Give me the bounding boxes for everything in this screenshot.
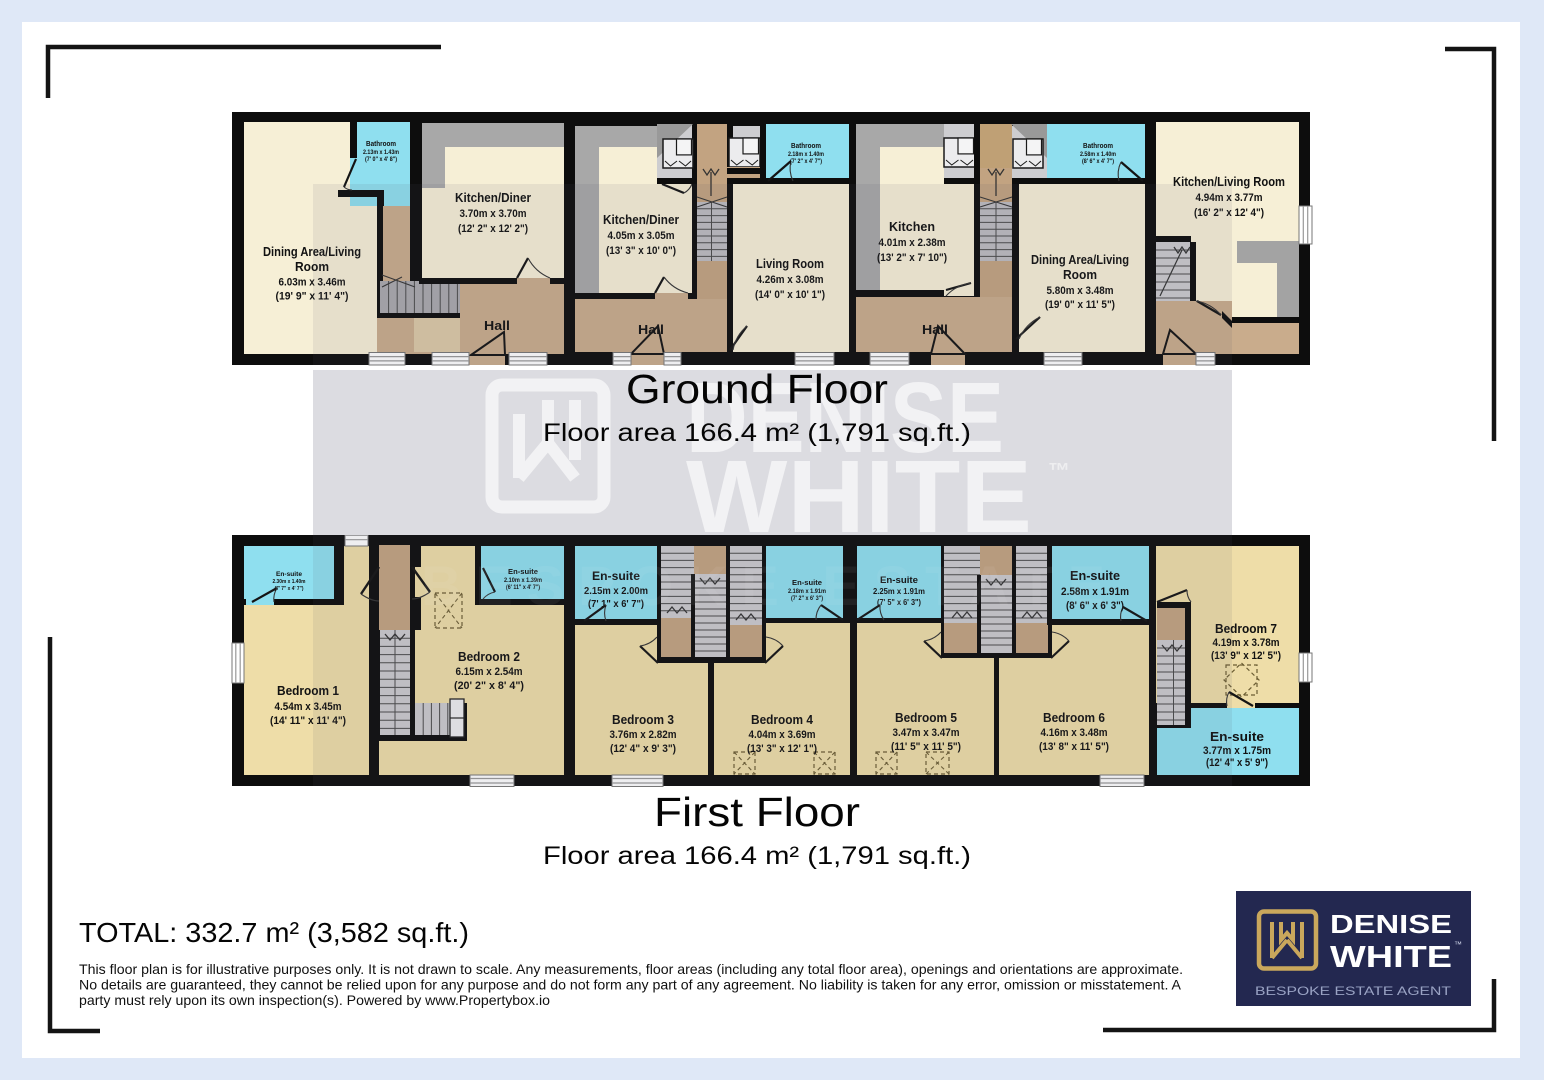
svg-text:(7' 7" x 4' 7"): (7' 7" x 4' 7") [275,586,304,592]
svg-text:This floor plan is for illustr: This floor plan is for illustrative purp… [79,962,1183,977]
svg-text:First Floor: First Floor [654,789,860,835]
svg-text:2.18m x 1.40m: 2.18m x 1.40m [788,152,824,158]
svg-text:Bathroom: Bathroom [366,141,396,148]
svg-text:Floor area 166.4 m² (1,791 sq.: Floor area 166.4 m² (1,791 sq.ft.) [543,419,971,447]
svg-text:No details are guaranteed, the: No details are guaranteed, they cannot b… [79,978,1182,993]
svg-text:2.58m x 1.40m: 2.58m x 1.40m [1080,152,1116,158]
svg-text:Ground Floor: Ground Floor [626,366,888,412]
svg-text:Floor area 166.4 m² (1,791 sq.: Floor area 166.4 m² (1,791 sq.ft.) [543,842,971,870]
svg-text:2.30m x 1.40m: 2.30m x 1.40m [273,579,306,585]
svg-text:BESPOKE ESTATE AGENT: BESPOKE ESTATE AGENT [1255,986,1451,998]
svg-text:(7' 2" x 4' 7"): (7' 2" x 4' 7") [790,159,822,165]
svg-text:party must rely upon its own i: party must rely upon its own inspection(… [79,993,550,1008]
svg-text:2.13m x 1.43m: 2.13m x 1.43m [363,150,399,156]
svg-text:(7' 0" x 4' 8"): (7' 0" x 4' 8") [365,157,397,163]
svg-text:Bathroom: Bathroom [791,143,821,150]
svg-text:™: ™ [1048,458,1070,483]
svg-text:DENISE: DENISE [1330,909,1452,939]
svg-text:TOTAL: 332.7 m² (3,582 sq.ft.): TOTAL: 332.7 m² (3,582 sq.ft.) [79,917,469,948]
svg-text:(8' 6" x 4' 7"): (8' 6" x 4' 7") [1082,159,1114,165]
svg-text:™: ™ [1454,940,1462,949]
svg-text:En-suite: En-suite [276,571,302,578]
svg-text:WHITE: WHITE [686,439,1032,554]
svg-text:BESPOKE ESTATE: BESPOKE ESTATE [421,554,1119,617]
svg-text:Bathroom: Bathroom [1083,143,1113,150]
svg-text:WHITE: WHITE [1330,939,1452,974]
